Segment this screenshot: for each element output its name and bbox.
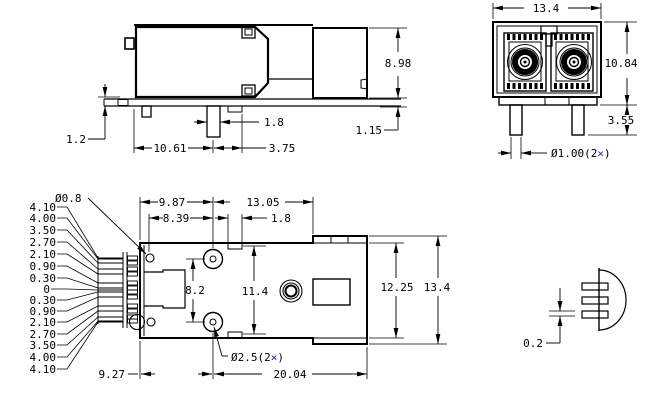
front-leg-left [510, 105, 522, 135]
lc-ferrule-left [508, 45, 543, 80]
front-view: 13.4 10.84 3.55 Ø1.00(2×) [493, 2, 638, 160]
guide-hole-top [146, 254, 154, 262]
end-pin-2 [582, 297, 608, 304]
pin-position-callouts: 4.10 4.00 3.50 2.70 2.10 0.90 0.30 0 0.3… [30, 201, 99, 376]
end-view-outline [582, 268, 626, 331]
top-boss [280, 280, 302, 302]
hole-diameter-label: Ø0.8 [55, 192, 82, 205]
side-view-outline [104, 25, 401, 137]
end-pin-1 [582, 283, 608, 290]
front-width-label: 13.4 [533, 2, 560, 15]
leg-diameter-label: Ø1.00(2×) [551, 147, 611, 160]
times-icon: × [271, 351, 278, 364]
post-diameter-label: Ø2.5(2×) [231, 351, 284, 364]
side-receptacle-block [313, 28, 367, 98]
dim-leg-diameter: Ø1.00(2×) [498, 137, 611, 160]
top-view: 4.10 4.00 3.50 2.70 2.10 0.90 0.30 0 0.3… [30, 192, 451, 381]
dim-body-height: 8.98 [369, 28, 411, 98]
pin-label: 4.10 [30, 363, 57, 376]
post-offset-label: 10.61 [153, 142, 186, 155]
span-top-left-label: 9.87 [159, 196, 186, 209]
mounting-post-bottom [204, 313, 223, 332]
engineering-drawing: 1.2 10.61 3.75 1.8 8 [0, 0, 660, 400]
body-height-label: 8.98 [385, 57, 412, 70]
overall-height-label: 13.4 [424, 281, 451, 294]
front-leg-right [572, 105, 584, 135]
inner-height-label: 11.4 [242, 285, 269, 298]
dim-top-row2: 8.39 1.8 [149, 212, 291, 252]
span-bottom-left-label: 9.27 [99, 368, 126, 381]
span-bottom-right-label: 20.04 [273, 368, 306, 381]
standoff-label: 1.15 [356, 124, 383, 137]
board-offset-label: 1.2 [66, 133, 86, 146]
span-hole-to-post-label: 8.39 [163, 212, 190, 225]
dim-leg-length: 3.55 [588, 105, 637, 135]
end-view: 0.2 [523, 268, 626, 350]
leg-length-label: 3.55 [608, 114, 635, 127]
post-spacing-label: 8.2 [185, 284, 205, 297]
times-icon: × [597, 147, 604, 160]
dim-post-offset: 10.61 [134, 109, 213, 155]
mounting-post-top [204, 250, 223, 269]
dim-front-height: 10.84 [600, 22, 638, 105]
dim-board-offset: 1.2 [66, 84, 120, 146]
peg-width-label: 1.8 [264, 116, 284, 129]
engineering-drawing-page: 1.2 10.61 3.75 1.8 8 [0, 0, 660, 400]
callout-hole-diameter: Ø0.8 [55, 192, 146, 254]
top-body-height-label: 12.25 [380, 281, 413, 294]
dim-body-height-top: 12.25 [369, 243, 414, 338]
dim-front-width: 13.4 [493, 2, 601, 19]
dim-post-spacing: 8.2 [185, 259, 205, 322]
side-pin-nub [125, 38, 134, 49]
top-interior-window [313, 279, 350, 305]
callout-post-diameter: Ø2.5(2×) [214, 327, 284, 364]
side-small-peg [142, 106, 151, 117]
slot-width-label: 1.8 [271, 212, 291, 225]
front-view-outline [493, 22, 601, 135]
top-connector-key [144, 270, 185, 308]
dim-inner-height: 11.4 [242, 246, 269, 334]
front-flange [499, 97, 597, 105]
lc-ferrule-right [557, 45, 592, 80]
side-mounting-post [207, 106, 220, 137]
front-height-label: 10.84 [604, 57, 637, 70]
side-view: 1.2 10.61 3.75 1.8 8 [66, 25, 411, 155]
span-top-right-label: 13.05 [246, 196, 279, 209]
dim-pin-thickness: 0.2 [523, 288, 575, 350]
pin-thickness-label: 0.2 [523, 337, 543, 350]
post-to-step-label: 3.75 [269, 142, 296, 155]
end-pin-3 [582, 311, 608, 318]
dim-standoff: 1.15 [356, 107, 408, 137]
guide-hole-bottom [147, 318, 155, 326]
